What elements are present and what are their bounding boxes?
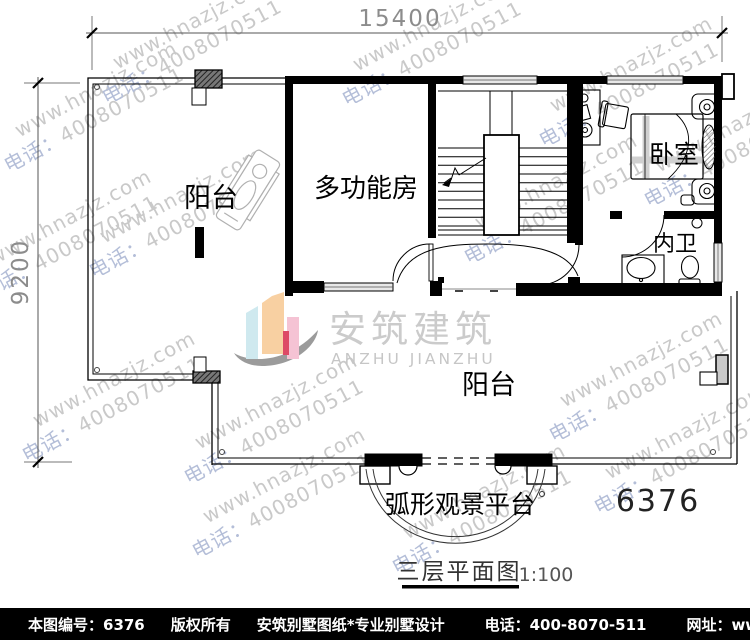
window-south-multiroom — [324, 283, 393, 291]
footer-sheet-no: 本图编号：6376 — [28, 614, 145, 635]
balcony-pier — [195, 227, 204, 258]
staircase — [438, 91, 567, 235]
footer-site: 网址：www.hnazjz.com — [686, 614, 750, 635]
footer-copyright: 版权所有 — [171, 614, 231, 635]
room-label-balcony-bottom: 阳台 — [462, 370, 516, 401]
window-right-bath — [714, 243, 722, 282]
corner-step — [722, 74, 734, 99]
dimension-left-value: 9200 — [8, 239, 34, 306]
floor-plan-sheet: www.hnazjz.com电话：4008070511 www.hnazjz.c… — [0, 0, 750, 640]
plan-title: 三层平面图 — [397, 559, 522, 585]
logo: 安筑建筑 ANZHU JIANZHU — [234, 292, 497, 368]
stair-landing — [484, 135, 519, 235]
bathroom-sink — [622, 255, 664, 284]
footer-phone: 电话：400-8070-511 — [485, 614, 647, 635]
hall-arch — [397, 244, 578, 283]
plan-scale: 1:100 — [519, 564, 574, 586]
pillow — [702, 125, 716, 169]
window-top-stair — [463, 76, 537, 84]
logo-en: ANZHU JIANZHU — [331, 350, 496, 368]
window-top-bedroom — [607, 76, 683, 84]
plan-number: 6376 — [616, 484, 700, 519]
upper-balcony-railing — [88, 70, 716, 465]
logo-bar-peach — [262, 292, 284, 354]
room-label-bedroom: 卧室 — [649, 140, 699, 169]
room-label-multi-function: 多功能房 — [314, 174, 418, 204]
label-arc-platform: 弧形观景平台 — [385, 490, 535, 519]
room-label-balcony-top: 阳台 — [184, 183, 238, 214]
bathroom-toilet — [679, 256, 700, 287]
plan-title-underline — [402, 585, 519, 589]
floor-plan-drawing: 15400 9200 — [0, 0, 750, 608]
logo-bar-red — [283, 331, 289, 355]
room-label-inner-bath: 内卫 — [653, 232, 697, 257]
footer-studio: 安筑别墅图纸*专业别墅设计 — [257, 614, 445, 635]
dimension-top-value: 15400 — [358, 6, 441, 32]
footer-bar: 本图编号：6376 版权所有 安筑别墅图纸*专业别墅设计 电话：400-8070… — [0, 608, 750, 640]
desk-chair — [598, 101, 629, 131]
logo-cn: 安筑建筑 — [329, 308, 497, 351]
logo-bar-cyan — [246, 306, 258, 359]
railing-pier — [716, 355, 728, 384]
